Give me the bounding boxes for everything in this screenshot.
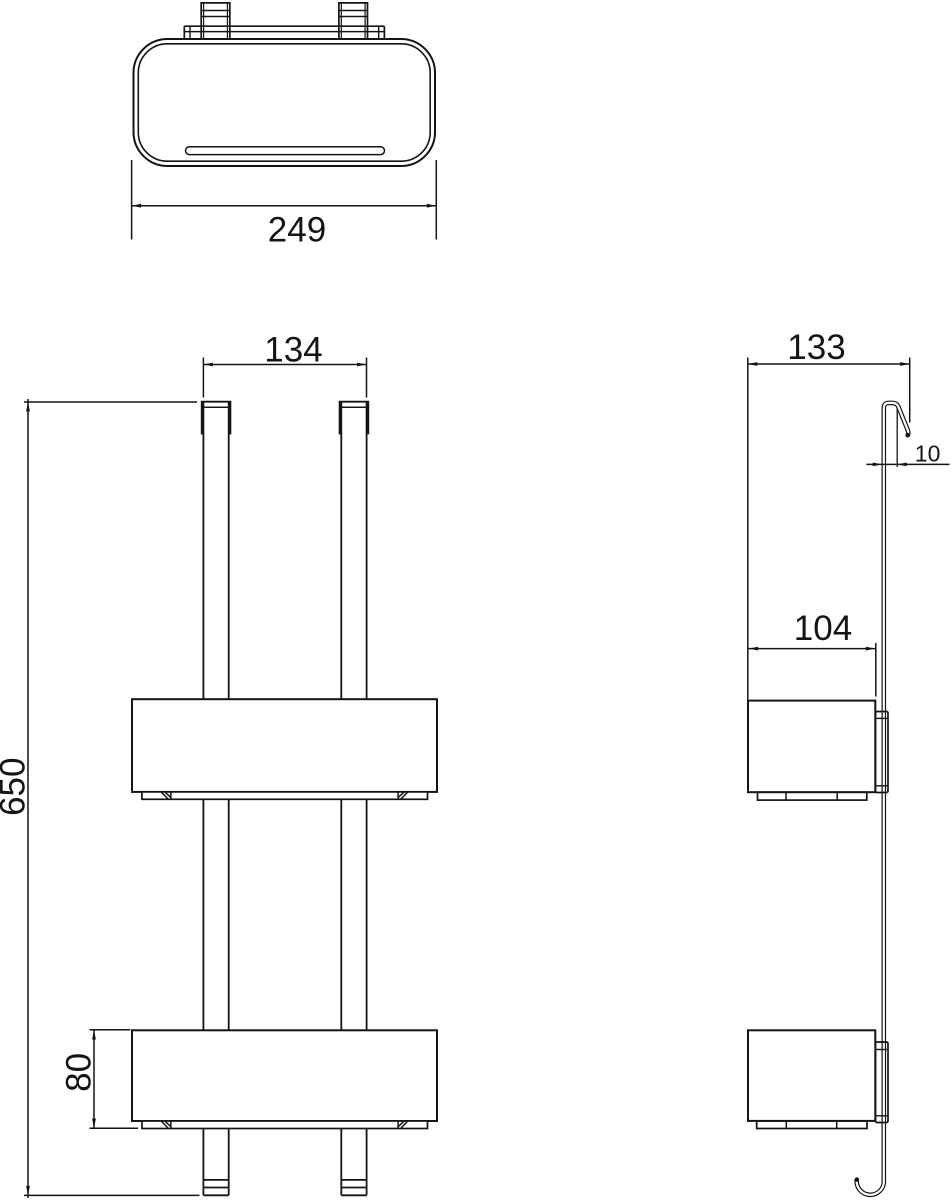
svg-text:134: 134 <box>264 330 322 369</box>
svg-text:650: 650 <box>0 757 33 815</box>
svg-text:133: 133 <box>787 328 845 367</box>
svg-text:249: 249 <box>268 211 326 250</box>
svg-text:104: 104 <box>794 609 852 648</box>
svg-text:10: 10 <box>915 441 941 467</box>
svg-text:80: 80 <box>60 1053 99 1092</box>
